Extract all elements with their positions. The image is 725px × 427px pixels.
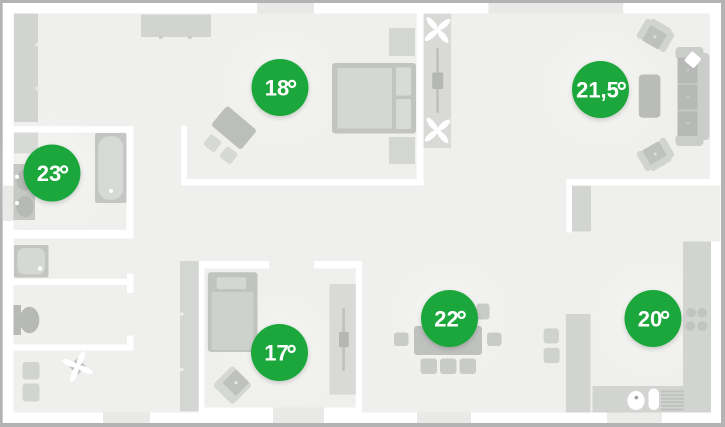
svg-text:18: 18 (265, 76, 289, 101)
svg-text:17: 17 (264, 341, 288, 366)
svg-text:23: 23 (37, 161, 61, 186)
svg-text:21,5: 21,5 (576, 78, 619, 103)
svg-text:20: 20 (638, 307, 662, 332)
svg-text:22: 22 (434, 307, 458, 332)
